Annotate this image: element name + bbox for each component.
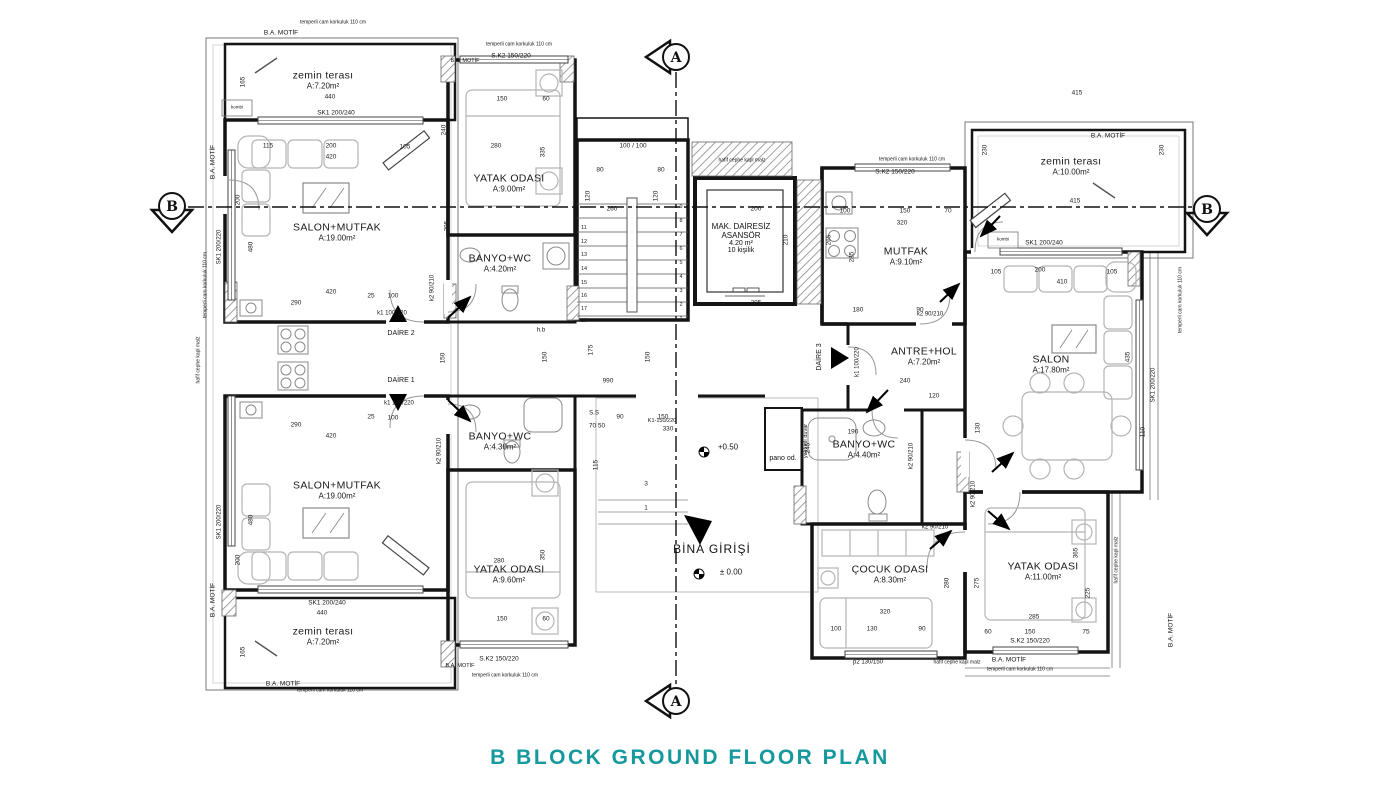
dimension-label: 480: [247, 242, 254, 253]
dimension-label: 205: [751, 299, 762, 306]
annotation-label: temperli cam korkuluk 110 cm: [486, 42, 552, 48]
dimension-label: 365: [1072, 548, 1079, 559]
dimension-label: 60: [984, 628, 991, 635]
room-name: MUTFAK: [884, 246, 928, 258]
dimension-label: 3: [644, 480, 648, 487]
room-name: YATAK ODASI: [474, 173, 545, 185]
annotation-label: SK1 200/240: [308, 599, 346, 606]
annotation-label: S.K2 150/220: [491, 52, 530, 59]
annotation-label: SK1 200/220: [217, 230, 224, 265]
dimension-label: 150: [644, 352, 651, 363]
dimension-label: 415: [1070, 197, 1081, 204]
stair-step-number: 5: [679, 260, 682, 266]
dimension-label: 285: [848, 252, 855, 263]
annotation-label: k1 100/220: [855, 347, 862, 377]
annotation-label: SK1 200/220: [1151, 368, 1158, 403]
room-label: MUTFAKA:9.10m²: [884, 246, 928, 267]
annotation-label: DAİRE 3: [816, 343, 824, 370]
room-area: A:17.80m²: [1032, 366, 1069, 375]
stair-step-number: 17: [581, 306, 587, 312]
dimension-label: 100: [388, 292, 399, 299]
annotation-label: temperli cam korkuluk 110 cm: [300, 20, 366, 26]
annotation-label: k2 90/210: [437, 438, 444, 464]
annotation-label: hafif cephe kapl malz: [719, 158, 766, 164]
annotation-label: B.A. MOTİF: [450, 58, 479, 64]
dimension-label: 150: [900, 207, 911, 214]
annotation-label: S.K2 150/220: [1010, 637, 1049, 644]
annotation-label: k2 90/210: [430, 275, 437, 301]
entrance-label: BİNA GİRİŞİ: [673, 542, 751, 556]
dimension-label: 200: [234, 555, 241, 566]
dimension-label: 200: [1035, 266, 1046, 273]
dimension-label: 290: [291, 421, 302, 428]
annotation-label: p2 130/150: [853, 660, 883, 667]
annotation-label: S.K2 150/220: [479, 655, 518, 662]
annotation-label: +0.50: [718, 444, 738, 453]
dimension-label: 320: [897, 219, 908, 226]
dimension-label: 480: [247, 515, 254, 526]
annotation-label: B.A. MOTİF: [209, 145, 216, 179]
annotation-label: temperli cam korkuluk 110 cm: [203, 252, 209, 318]
dimension-label: 280: [943, 578, 950, 589]
stair-step-number: 12: [581, 239, 587, 245]
plan-title: B BLOCK GROUND FLOOR PLAN: [490, 746, 890, 770]
stair-step-number: 11: [581, 225, 587, 231]
dimension-label: 290: [291, 299, 302, 306]
room-name: BANYO+WC: [833, 439, 896, 451]
elevator-line1: MAK. DAİRESİZ: [712, 222, 771, 231]
dimension-label: 70 50: [589, 422, 605, 429]
dimension-label: 280: [491, 142, 502, 149]
dimension-label: 60: [542, 95, 549, 102]
dimension-label: 80: [657, 166, 664, 173]
annotation-label: temperli cam korkuluk 110 cm: [472, 673, 538, 679]
room-label: YATAK ODASIA:11.00m²: [1008, 561, 1079, 582]
stair-step-number: 9: [679, 204, 682, 210]
room-label: zemin terasıA:7.20m²: [293, 70, 354, 91]
dimension-label: 230: [1158, 145, 1165, 156]
dimension-label: 265: [825, 235, 832, 246]
stair-step-number: 3: [679, 288, 682, 294]
dimension-label: 70: [944, 207, 951, 214]
room-label: YATAK ODASIA:9.60m²: [474, 564, 545, 585]
annotation-label: kombi: [231, 106, 243, 111]
room-label: ÇOCUK ODASIA:8.30m²: [852, 564, 929, 585]
annotation-label: B.A. MOTİF: [1167, 613, 1174, 647]
annotation-label: hafif cephe kapl malz: [934, 660, 981, 666]
stair-step-number: 6: [679, 246, 682, 252]
dimension-label: 260: [607, 205, 618, 212]
dimension-label: 440: [325, 93, 336, 100]
room-name: ANTRE+HOL: [891, 346, 957, 358]
dimension-label: 225: [1084, 588, 1091, 599]
annotation-label: DAİRE 2: [387, 330, 414, 338]
room-area: A:7.20m²: [293, 638, 354, 647]
room-label: SALON+MUTFAKA:19.00m²: [293, 222, 381, 243]
room-label: ANTRE+HOLA:7.20m²: [891, 346, 957, 367]
stair-step-number: 1: [679, 316, 682, 322]
room-name: zemin terası: [293, 70, 354, 82]
annotation-label: B.A. MOTİF: [992, 656, 1026, 663]
stair-step-number: 8: [679, 218, 682, 224]
stair-step-number: 7: [679, 232, 682, 238]
annotation-label: temperli cam korkuluk 110 cm: [1178, 267, 1184, 333]
dimension-label: 80: [596, 166, 603, 173]
room-area: A:9.10m²: [884, 258, 928, 267]
room-name: BANYO+WC: [469, 253, 532, 265]
dimension-label: 110: [1139, 427, 1146, 437]
room-label: zemin terasıA:7.20m²: [293, 626, 354, 647]
room-area: A:19.00m²: [293, 492, 381, 501]
dimension-label: 25: [367, 413, 374, 420]
dimension-label: 200: [751, 205, 762, 212]
room-label: BANYO+WCA:4.20m²: [469, 253, 532, 274]
dimension-label: 420: [326, 288, 337, 295]
dimension-label: 990: [603, 377, 614, 384]
dimension-label: 100 / 100: [619, 142, 646, 149]
room-label: YATAK ODASIA:9.00m²: [474, 173, 545, 194]
dimension-label: 285: [1029, 613, 1040, 620]
stair-step-number: 4: [679, 274, 682, 280]
dimension-label: 435: [1124, 352, 1131, 363]
annotation-label: SK1 200/240: [317, 109, 355, 116]
stair-step-number: 15: [581, 280, 587, 286]
room-label: BANYO+WCA:4.40m²: [833, 439, 896, 460]
dimension-label: 165: [239, 77, 246, 88]
annotation-label: B.A. MOTİF: [209, 583, 216, 617]
dimension-label: 395: [443, 221, 450, 232]
dimension-label: 150: [1025, 628, 1036, 635]
dimension-label: 330: [663, 425, 674, 432]
annotation-label: ± 0.00: [720, 569, 742, 578]
room-name: YATAK ODASI: [1008, 561, 1079, 573]
dimension-label: 150: [658, 413, 669, 420]
dimension-label: 25: [367, 292, 374, 299]
room-area: A:9.60m²: [474, 576, 545, 585]
dimension-label: 130: [867, 625, 878, 632]
room-name: zemin terası: [1041, 156, 1102, 168]
dimension-label: 420: [326, 432, 337, 439]
annotation-label: k1 100/220: [384, 401, 414, 408]
elevator-label: MAK. DAİRESİZ ASANSÖR 4.20 m² 10 kişilik: [712, 222, 771, 254]
room-area: A:8.30m²: [852, 576, 929, 585]
dimension-label: 90: [918, 625, 925, 632]
room-area: A:4.20m²: [469, 265, 532, 274]
dimension-label: 150: [497, 95, 508, 102]
annotation-label: hafif cephe kapl malz: [196, 337, 202, 384]
elevator-line2: ASANSÖR: [712, 231, 771, 240]
dimension-label: 165: [239, 647, 246, 658]
room-name: SALON+MUTFAK: [293, 222, 381, 234]
room-name: BANYO+WC: [469, 431, 532, 443]
elevator-line3: 4.20 m²: [712, 240, 771, 247]
floor-plan-sheet: A A B B: [0, 0, 1400, 788]
dimension-label: 230: [981, 145, 988, 156]
dimension-label: 190: [848, 428, 859, 435]
room-label: BANYO+WCA:4.30m²: [469, 431, 532, 452]
room-label: SALONA:17.80m²: [1032, 354, 1069, 375]
annotation-label: kombi: [997, 238, 1009, 243]
dimension-label: 100: [388, 414, 399, 421]
room-area: A:9.00m²: [474, 185, 545, 194]
dimension-label: 130: [974, 423, 981, 434]
dimension-label: 245: [804, 443, 811, 454]
room-area: A:10.00m²: [1041, 168, 1102, 177]
annotation-label: k2 90/210: [922, 525, 948, 532]
dimension-label: 105: [991, 268, 1002, 275]
dimension-label: 75: [1082, 628, 1089, 635]
dimension-label: 415: [1072, 89, 1083, 96]
dimension-label: 115: [592, 460, 599, 470]
annotation-label: DAİRE 1: [387, 377, 414, 385]
dimension-label: 280: [494, 557, 505, 564]
room-area: A:7.20m²: [891, 358, 957, 367]
annotation-label: SK1 200/220: [217, 505, 224, 540]
annotation-label: k1 100/220: [377, 311, 407, 318]
dimension-label: 150: [497, 615, 508, 622]
dimension-label: 120: [652, 191, 659, 202]
dimension-label: 420: [326, 153, 337, 160]
dimension-label: 120: [584, 191, 591, 202]
annotation-label: S.K2 150/220: [875, 168, 914, 175]
dimension-label: 115: [263, 142, 273, 149]
annotation-label: k2 90/210: [971, 481, 978, 507]
room-label: zemin terasıA:10.00m²: [1041, 156, 1102, 177]
dimension-label: 120: [929, 392, 940, 399]
dimension-label: 240: [440, 125, 447, 136]
stair-step-number: 2: [679, 302, 682, 308]
dimension-label: 100: [831, 625, 842, 632]
dimension-label: 210: [782, 235, 789, 246]
annotation-label: h.b: [537, 328, 545, 335]
annotation-label: temperli cam korkuluk 110 cm: [987, 667, 1053, 673]
dimension-label: 410: [1057, 278, 1068, 285]
room-name: zemin terası: [293, 626, 354, 638]
dimension-label: 90: [616, 413, 623, 420]
stair-step-number: 16: [581, 293, 587, 299]
dimension-label: 100: [840, 207, 851, 214]
dimension-label: 440: [317, 609, 328, 616]
dimension-label: 150: [439, 353, 446, 364]
stair-step-number: 13: [581, 252, 587, 258]
dimension-label: 90: [916, 306, 923, 313]
room-area: A:19.00m²: [293, 234, 381, 243]
room-area: A:4.30m²: [469, 443, 532, 452]
annotation-label: k2 90/210: [909, 443, 916, 469]
dimension-label: 180: [853, 306, 864, 313]
dimension-label: 60: [542, 615, 549, 622]
annotation-label: B.A. MOTİF: [1091, 132, 1125, 139]
room-label: SALON+MUTFAKA:19.00m²: [293, 480, 381, 501]
dimension-label: 240: [900, 377, 911, 384]
annotation-label: S.S: [589, 411, 599, 418]
plan-labels: zemin terasıA:7.20m²SALON+MUTFAKA:19.00m…: [0, 0, 1400, 788]
dimension-label: 200: [326, 142, 337, 149]
annotation-label: temperli cam korkuluk 110 cm: [297, 688, 363, 694]
annotation-label: B.A. MOTİF: [266, 680, 300, 687]
dimension-label: 275: [973, 578, 980, 589]
elevator-line4: 10 kişilik: [712, 247, 771, 254]
dimension-label: 105: [400, 143, 411, 150]
room-name: YATAK ODASI: [474, 564, 545, 576]
dimension-label: 350: [539, 550, 546, 561]
stair-step-number: 18: [581, 318, 587, 324]
room-area: A:11.00m²: [1008, 573, 1079, 582]
dimension-label: 335: [539, 147, 546, 158]
dimension-label: 175: [587, 345, 594, 356]
dimension-label: 200: [234, 195, 241, 206]
annotation-label: hafif cephe kapl malz: [1114, 537, 1120, 584]
room-area: A:4.40m²: [833, 451, 896, 460]
stair-step-number: 14: [581, 266, 587, 272]
dimension-label: 320: [880, 608, 891, 615]
annotation-label: B.A. MOTİF: [264, 29, 298, 36]
annotation-label: B.A. MOTİF: [445, 663, 474, 669]
dimension-label: 105: [1107, 268, 1118, 275]
annotation-label: temperli cam korkuluk 110 cm: [879, 157, 945, 163]
annotation-label: SK1 200/240: [1025, 239, 1063, 246]
room-area: A:7.20m²: [293, 82, 354, 91]
room-name: SALON+MUTFAK: [293, 480, 381, 492]
dimension-label: 1: [644, 504, 648, 511]
dimension-label: 150: [541, 352, 548, 363]
room-name: ÇOCUK ODASI: [852, 564, 929, 576]
room-name: SALON: [1032, 354, 1069, 366]
annotation-label: pano od.: [769, 455, 796, 463]
